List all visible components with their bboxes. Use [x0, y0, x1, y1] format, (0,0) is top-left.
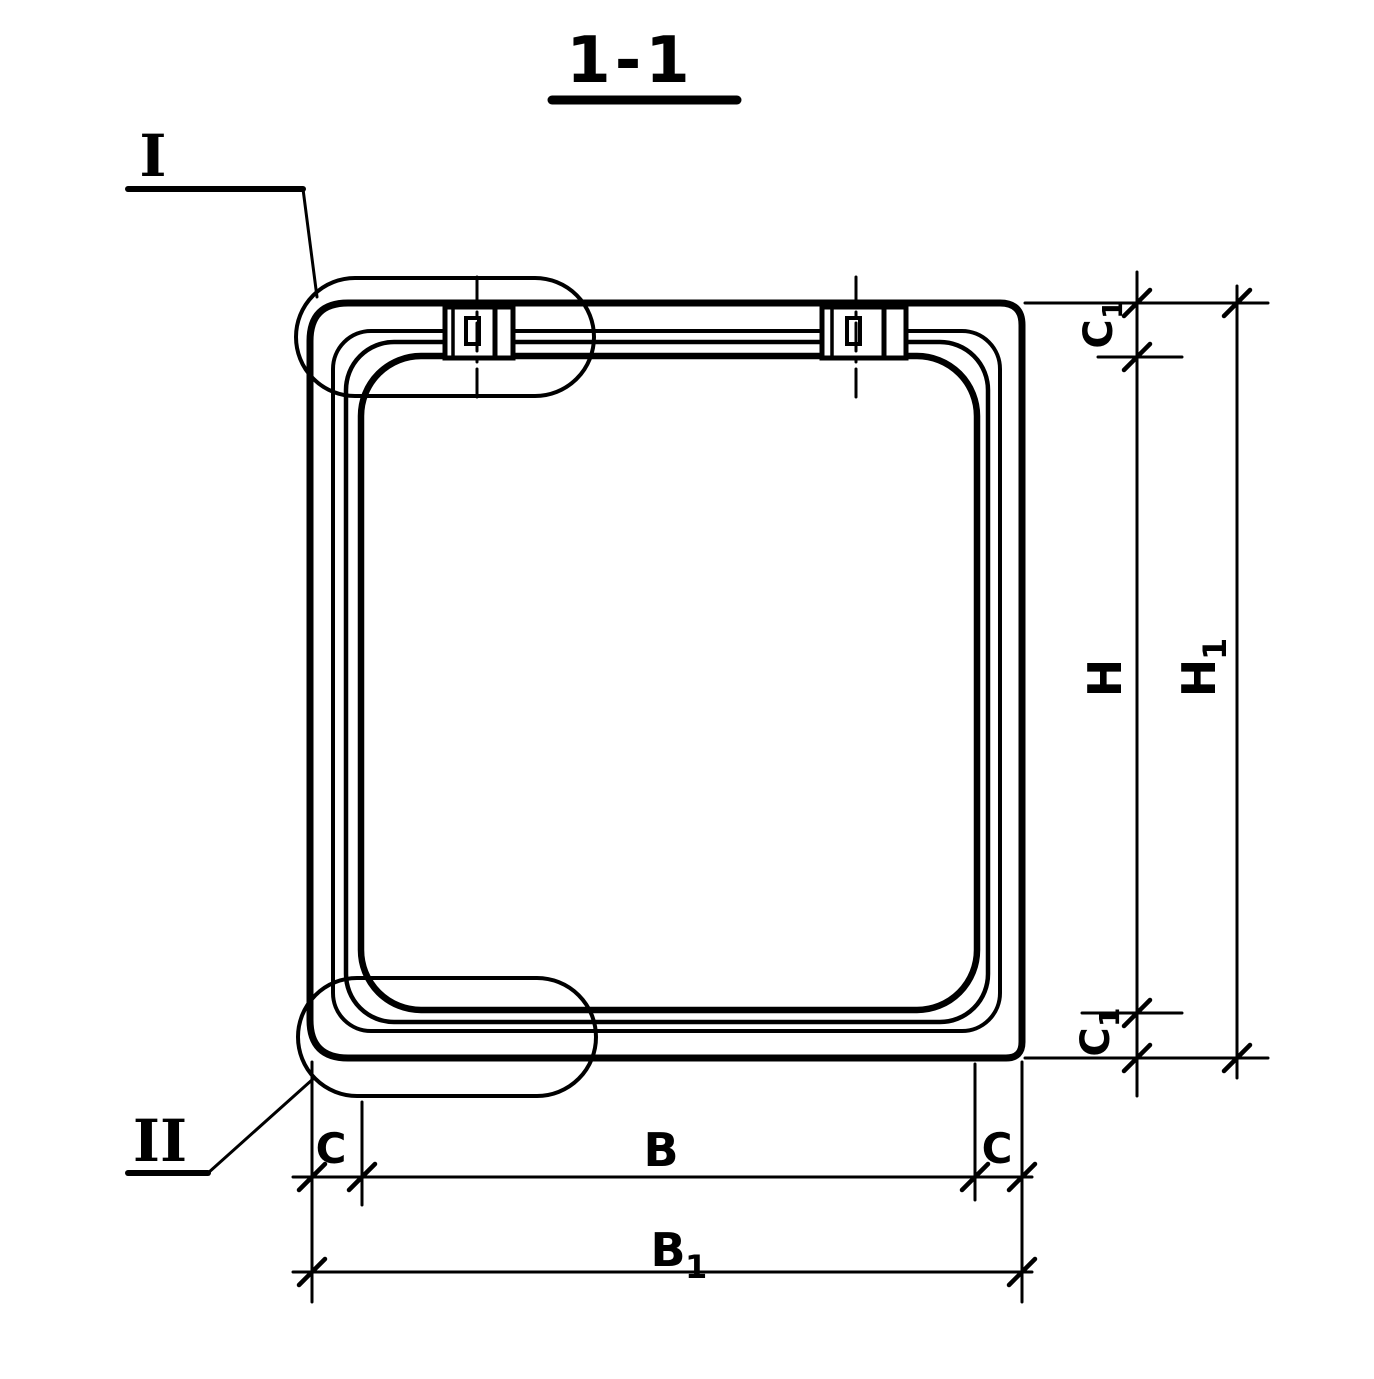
joint-body	[822, 307, 906, 358]
dim-label-b1-main: B	[650, 1223, 685, 1277]
dim-label-h1-main: H	[1172, 659, 1226, 698]
dim-label-b1-sub: 1	[685, 1248, 707, 1286]
dim-label-h1-sub: 1	[1196, 638, 1234, 660]
dim-label-c-left: C	[316, 1124, 347, 1173]
dim-label-h: H	[1078, 659, 1132, 698]
dim-label-c1-bottom-sub: 1	[1093, 1008, 1126, 1027]
detail-callout-one-label: I	[139, 122, 166, 190]
dim-label-c1-top-sub: 1	[1096, 300, 1129, 319]
section-drawing: 1-1 I II C B C B 1 C 1 H H 1 C 1	[0, 0, 1374, 1379]
section-title: 1-1	[566, 24, 694, 98]
section-drawing-sheet: 1-1 I II C B C B 1 C 1 H H 1 C 1	[0, 0, 1374, 1379]
dim-label-h-main: H	[1078, 659, 1132, 698]
detail-callout-two-label: II	[133, 1107, 187, 1175]
dim-label-c1-top-main: C	[1076, 319, 1122, 348]
dim-label-b: B	[643, 1123, 678, 1177]
dim-label-c-right: C	[982, 1124, 1013, 1173]
dim-label-c1-bottom-main: C	[1073, 1027, 1119, 1056]
